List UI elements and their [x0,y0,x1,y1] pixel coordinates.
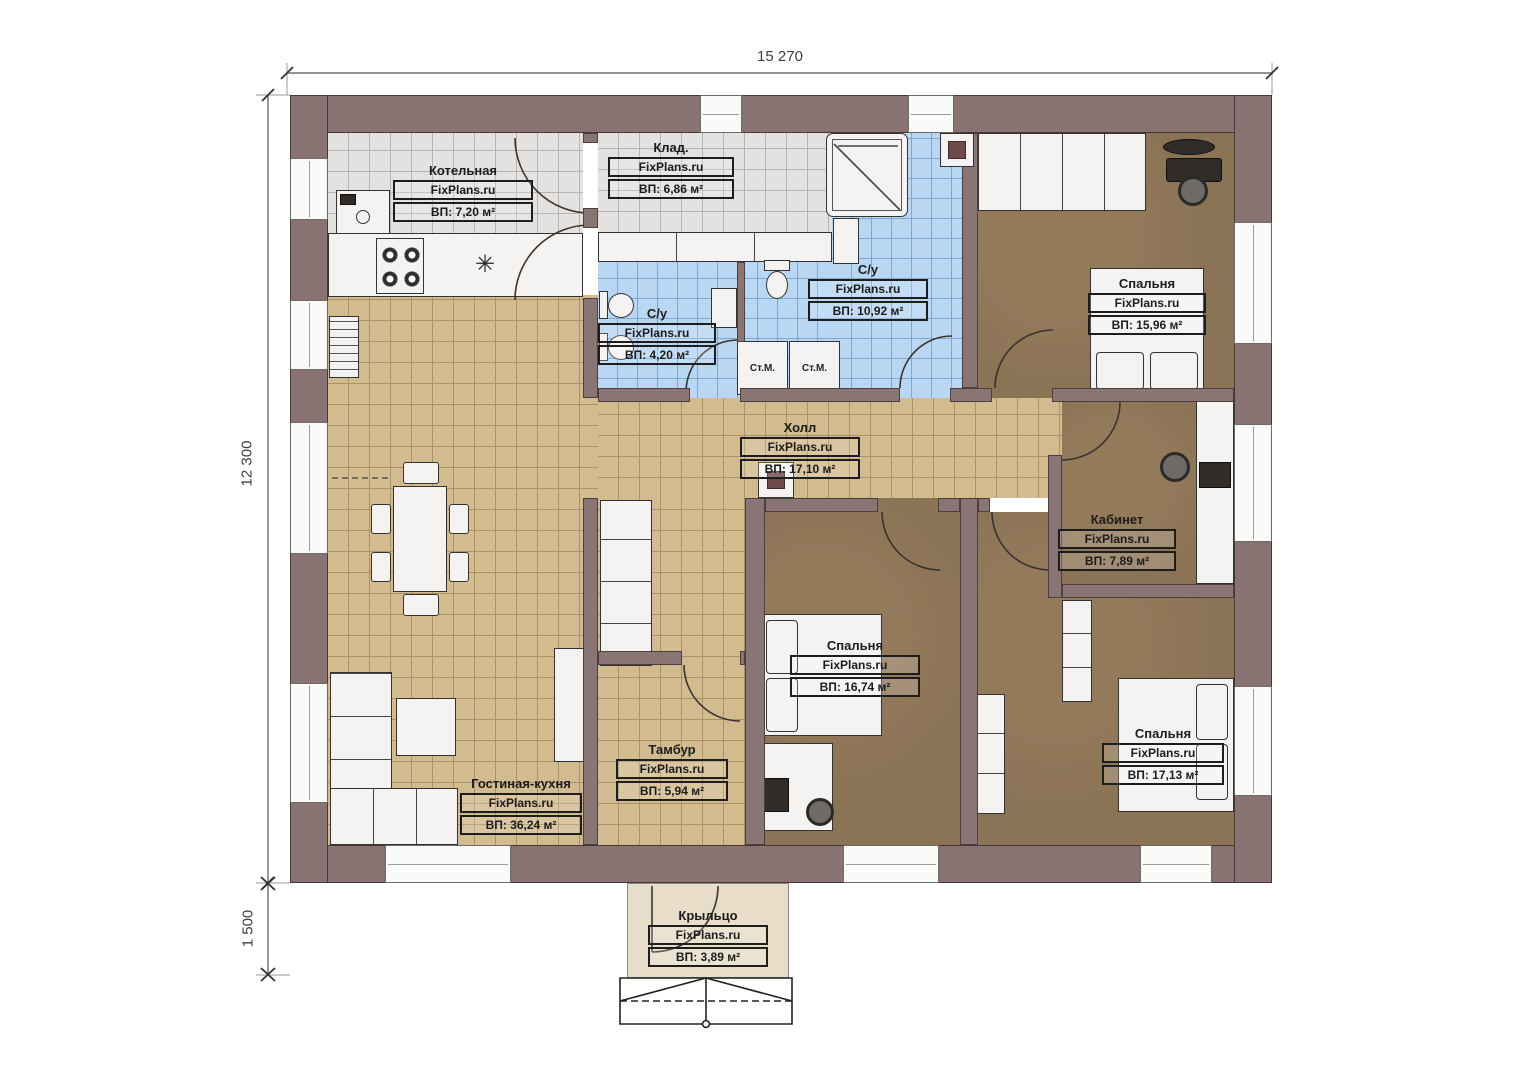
room-name: Холл [740,420,860,435]
room-name: С/у [808,262,928,277]
room-label-su-small: С/у FixPlans.ru ВП: 4,20 м² [598,306,716,365]
shower-glass-line [834,144,900,210]
wall-partition [583,298,598,398]
wall-partition [583,208,598,228]
watermark: FixPlans.ru [608,157,734,177]
door-arcs [515,138,1120,952]
room-label-living: Гостиная-кухня FixPlans.ru ВП: 36,24 м² [460,776,582,835]
room-label-su-big: С/у FixPlans.ru ВП: 10,92 м² [808,262,928,321]
room-name: Котельная [393,163,533,178]
wall-partition [583,498,598,845]
room-area: ВП: 3,89 м² [648,947,768,967]
room-label-bedroom-c: Спальня FixPlans.ru ВП: 16,74 м² [790,638,920,697]
window-right-1 [1234,222,1272,344]
room-name: Спальня [1102,726,1224,741]
room-label-bedroom-br: Спальня FixPlans.ru ВП: 17,13 м² [1102,726,1224,785]
room-area: ВП: 16,74 м² [790,677,920,697]
window-right-2 [1234,424,1272,542]
room-area: ВП: 10,92 м² [808,301,928,321]
watermark: FixPlans.ru [393,180,533,200]
room-name: Гостиная-кухня [460,776,582,791]
watermark: FixPlans.ru [1088,293,1206,313]
wall-partition [1062,584,1234,598]
watermark: FixPlans.ru [460,793,582,813]
room-area: ВП: 4,20 м² [598,345,716,365]
room-name: Тамбур [616,742,728,757]
vent-top-1 [700,95,742,133]
room-label-bedroom-tr: Спальня FixPlans.ru ВП: 15,96 м² [1088,276,1206,335]
wall-top [290,95,1272,133]
dimension-width: 15 270 [720,48,840,65]
room-area: ВП: 7,20 м² [393,202,533,222]
watermark: FixPlans.ru [1102,743,1224,763]
wall-partition [978,498,990,512]
watermark: FixPlans.ru [1058,529,1176,549]
wall-partition [1052,388,1234,402]
room-label-kotelnaya: Котельная FixPlans.ru ВП: 7,20 м² [393,163,533,222]
window-left-4 [290,683,328,803]
dimension-porch: 1 500 [240,899,257,959]
room-label-klad: Клад. FixPlans.ru ВП: 6,86 м² [608,140,734,199]
window-right-3 [1234,686,1272,796]
room-area: ВП: 36,24 м² [460,815,582,835]
window-bottom-1 [385,845,511,883]
watermark: FixPlans.ru [598,323,716,343]
room-label-hall: Холл FixPlans.ru ВП: 17,10 м² [740,420,860,479]
watermark: FixPlans.ru [648,925,768,945]
window-bottom-2 [843,845,939,883]
room-name: Клад. [608,140,734,155]
watermark: FixPlans.ru [616,759,728,779]
window-left-3 [290,422,328,554]
room-area: ВП: 6,86 м² [608,179,734,199]
room-name: Крыльцо [648,908,768,923]
room-name: Спальня [790,638,920,653]
room-label-kabinet: Кабинет FixPlans.ru ВП: 7,89 м² [1058,512,1176,571]
room-area: ВП: 5,94 м² [616,781,728,801]
room-area: ВП: 7,89 м² [1058,551,1176,571]
watermark: FixPlans.ru [808,279,928,299]
window-left-2 [290,300,328,370]
floor-plan: ✳ Ст.М. Ст.М. [0,0,1528,1080]
wall-partition [598,651,682,665]
room-label-tambur: Тамбур FixPlans.ru ВП: 5,94 м² [616,742,728,801]
wall-partition [737,262,745,342]
wall-partition [950,388,992,402]
watermark: FixPlans.ru [740,437,860,457]
room-label-porch: Крыльцо FixPlans.ru ВП: 3,89 м² [648,908,768,967]
window-left-1 [290,158,328,220]
dimension-height: 12 300 [239,429,256,499]
wall-partition [598,388,690,402]
wall-partition [765,498,878,512]
porch-stairs [620,978,792,1028]
wall-partition [583,133,598,143]
wall-partition [960,498,978,845]
room-area: ВП: 15,96 м² [1088,315,1206,335]
wall-partition [740,651,745,665]
vent-top-2 [908,95,954,133]
wall-partition [962,133,978,388]
window-bottom-3 [1140,845,1212,883]
wall-column-core [948,141,966,159]
wall-partition [938,498,960,512]
room-name: Спальня [1088,276,1206,291]
room-name: С/у [598,306,716,321]
room-area: ВП: 17,13 м² [1102,765,1224,785]
wall-partition [745,498,765,845]
watermark: FixPlans.ru [790,655,920,675]
wall-partition [740,388,900,402]
room-name: Кабинет [1058,512,1176,527]
room-area: ВП: 17,10 м² [740,459,860,479]
